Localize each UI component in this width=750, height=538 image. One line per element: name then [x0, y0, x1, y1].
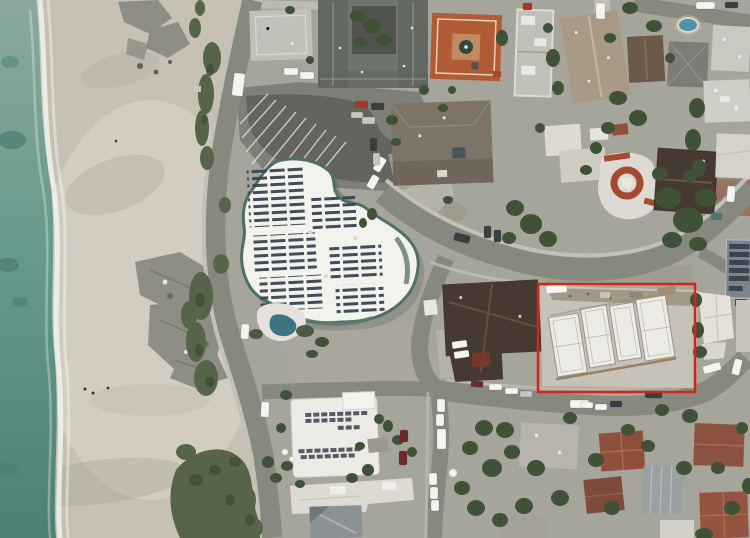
construction-site — [540, 286, 698, 388]
white-flat-tr — [711, 25, 750, 72]
brown-house-tr — [627, 35, 665, 83]
white-canopy-building — [715, 133, 750, 178]
gray-hip-house-tr — [667, 41, 709, 87]
gray-gable-complex — [318, 0, 428, 88]
white-flat-tr2 — [703, 79, 750, 123]
small-white-roof — [423, 299, 437, 315]
gray-gable-house-south — [309, 505, 362, 538]
umbrella — [282, 449, 288, 455]
aerial-photo-canvas — [0, 0, 750, 538]
shed — [367, 437, 388, 453]
aerial-photo — [0, 0, 750, 538]
backyard-pool — [675, 15, 701, 35]
dumpster — [711, 213, 722, 220]
umbrella — [449, 469, 457, 477]
solar-roof-house-east — [725, 240, 750, 298]
brown-hip-house — [391, 100, 494, 185]
flat-roof-building — [249, 9, 313, 61]
overlook-platform — [193, 86, 201, 92]
umbrella — [290, 457, 295, 462]
red-tile-building — [430, 13, 503, 81]
